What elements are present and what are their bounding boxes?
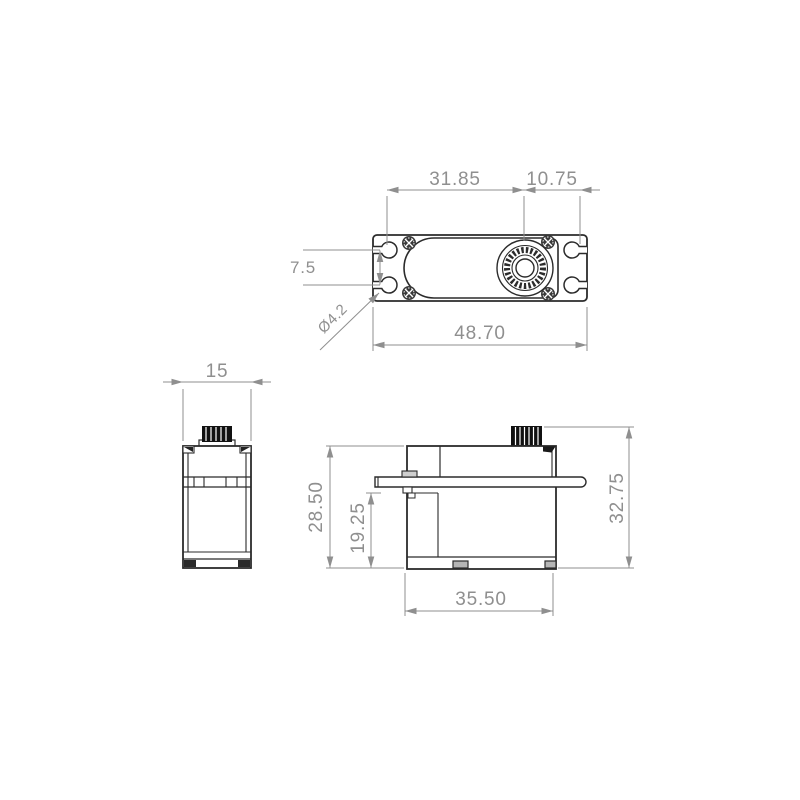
side-view: 15	[163, 361, 271, 568]
dim-case-length: 35.50	[405, 573, 553, 616]
dim-overall-length: 48.70	[373, 307, 587, 351]
foot-right	[545, 561, 556, 568]
dim-flange-to-base: 19.25	[348, 493, 381, 568]
screw-icon	[402, 286, 416, 300]
mounting-flange	[375, 477, 586, 487]
dim-label-overall-height: 32.75	[607, 472, 628, 524]
top-view: 31.85 10.75 7.5 Ø4.2 48.70	[290, 169, 600, 351]
screw-icon	[402, 236, 416, 250]
flange-tab-left	[183, 446, 194, 453]
drawing-canvas: 31.85 10.75 7.5 Ø4.2 48.70	[0, 0, 800, 800]
dim-top-horizontal: 31.85 10.75	[387, 169, 600, 245]
foot-left	[184, 560, 196, 567]
dim-flange-hole-pitch: 7.5	[290, 250, 380, 285]
dim-label-body-width: 15	[206, 361, 229, 382]
dim-hole-diameter: Ø4.2	[315, 293, 379, 350]
top-case-outline	[404, 238, 558, 298]
servo-dimension-drawing: 31.85 10.75 7.5 Ø4.2 48.70	[0, 0, 800, 800]
dim-label-flange-to-base: 19.25	[348, 502, 369, 554]
flange-notch	[408, 493, 415, 498]
dim-label-hole-diameter: Ø4.2	[315, 301, 351, 337]
front-body	[407, 446, 556, 569]
dim-overall-height: 32.75	[544, 427, 634, 568]
dim-label-flange-hole-pitch: 7.5	[290, 258, 316, 277]
foot-left	[453, 561, 468, 568]
dim-label-body-height: 28.50	[306, 481, 327, 533]
dim-label-overall-length: 48.70	[454, 323, 506, 344]
dim-label-shaft-to-hole: 10.75	[526, 169, 578, 190]
output-gear	[511, 426, 542, 447]
output-gear	[202, 426, 232, 442]
dim-label-hole-to-shaft: 31.85	[429, 169, 481, 190]
dim-label-case-length: 35.50	[455, 589, 507, 610]
flange-step	[403, 487, 412, 493]
flange-tab-right	[240, 446, 251, 453]
front-view: 28.50 19.25 32.75 35.50	[306, 426, 634, 616]
foot-right	[238, 560, 250, 567]
side-body	[183, 446, 251, 568]
flange-pad	[402, 471, 417, 477]
